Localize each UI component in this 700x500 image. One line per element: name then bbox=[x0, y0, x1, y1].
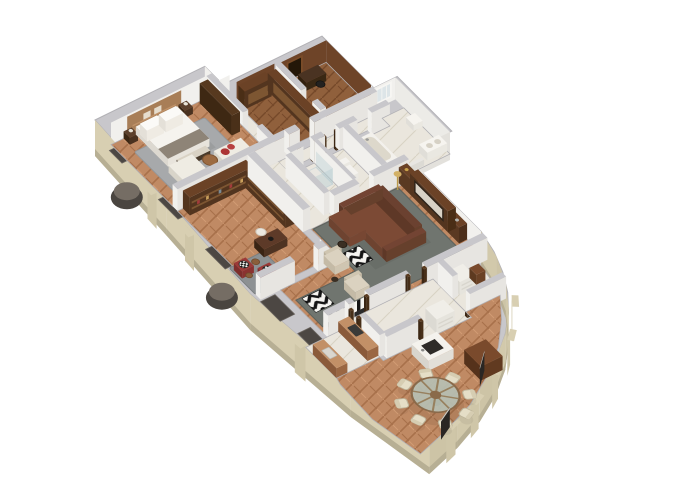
shape bbox=[380, 333, 385, 358]
window-mullion bbox=[382, 88, 383, 100]
shape bbox=[368, 109, 372, 135]
facade-pier bbox=[507, 329, 517, 376]
floorplan-canvas bbox=[0, 0, 700, 500]
shape bbox=[512, 295, 519, 307]
door-frame-post bbox=[418, 318, 423, 341]
shape bbox=[507, 329, 517, 342]
shape bbox=[448, 207, 456, 232]
building bbox=[95, 36, 519, 474]
shape bbox=[453, 274, 458, 299]
shape bbox=[232, 112, 240, 136]
shape bbox=[335, 125, 339, 151]
shape bbox=[418, 320, 420, 341]
shape bbox=[421, 321, 424, 341]
shape bbox=[209, 283, 235, 301]
shape bbox=[114, 182, 140, 200]
shape bbox=[310, 137, 314, 163]
floorplan-3d-render bbox=[0, 0, 700, 500]
shape bbox=[324, 191, 329, 216]
shape bbox=[303, 207, 310, 233]
window-mullion bbox=[386, 86, 387, 98]
